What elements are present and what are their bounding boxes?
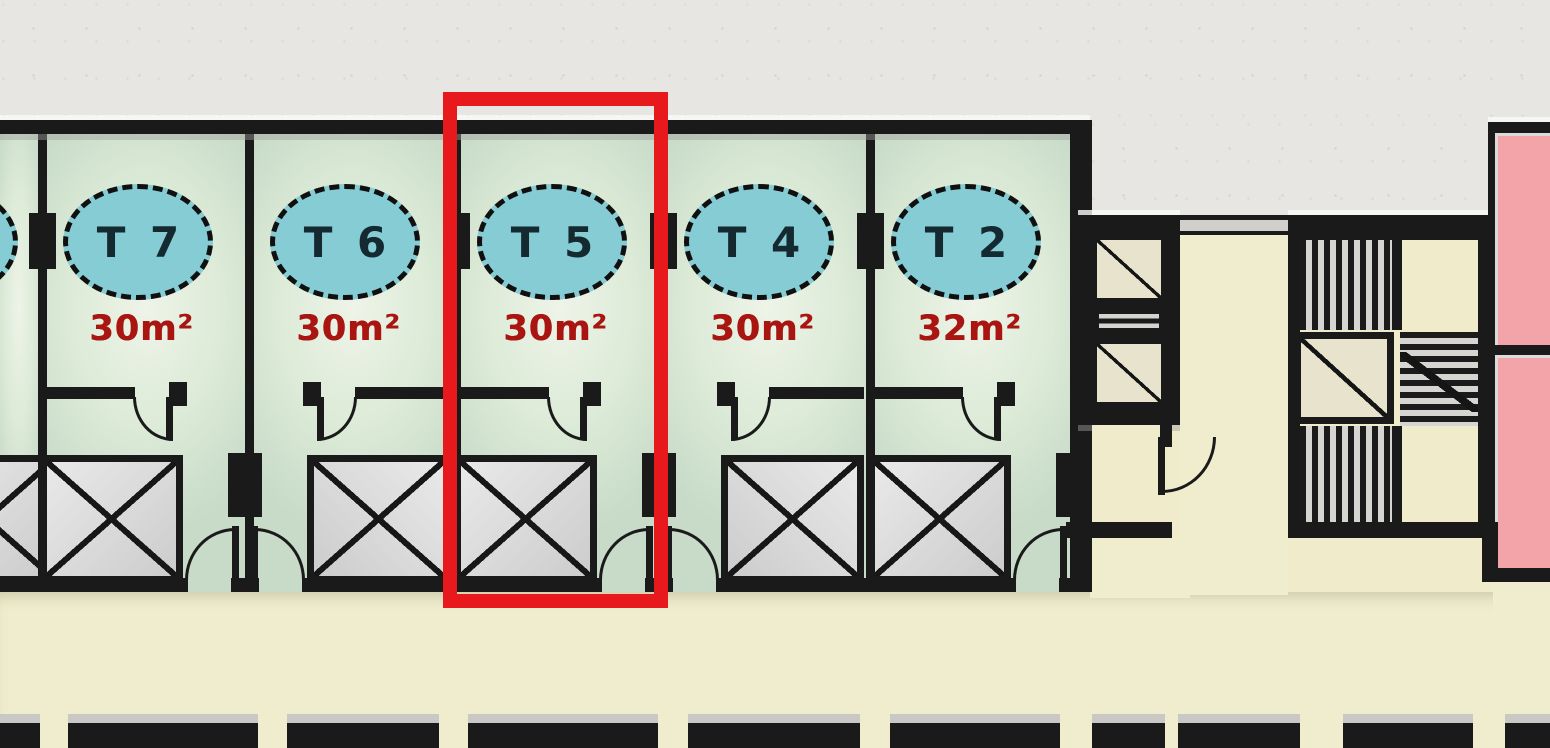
unit-T7[interactable]: T 7 30m² — [38, 120, 245, 592]
stairwell-top-wall — [1288, 215, 1493, 240]
unit-T6[interactable]: T 6 30m² — [245, 120, 452, 592]
unit-bottom-wall — [38, 578, 188, 592]
pink-room-1 — [1498, 136, 1550, 345]
entrance-door-leaf — [232, 526, 239, 582]
unit-number-badge: T 6 — [270, 184, 420, 300]
unit-area: 32m² — [866, 309, 1073, 349]
unit-number: T 2 — [920, 218, 1013, 267]
lower-unit-wall-segment — [1092, 714, 1165, 748]
entrance-door-arc — [1013, 528, 1063, 580]
interior-wall — [868, 387, 963, 399]
unit-bottom-wall — [866, 578, 1016, 592]
stair-direction-line — [1400, 352, 1478, 412]
unit-partial-left — [0, 120, 38, 592]
unit-number: T 7 — [92, 218, 185, 267]
shaft-block-upper — [857, 213, 884, 269]
interior-wall — [40, 387, 135, 399]
pink-rooms-divider-wall — [1490, 345, 1550, 358]
unit-lower-section — [866, 380, 1073, 592]
corridor-right — [1180, 235, 1288, 595]
unit-area: 30m² — [245, 309, 452, 349]
lower-unit-wall-segment — [890, 714, 1060, 748]
lower-unit-wall-segment — [688, 714, 860, 748]
lower-unit-wall-segment — [1178, 714, 1300, 748]
selection-highlight-T5 — [443, 92, 668, 608]
unit-T4[interactable]: T 4 30m² — [659, 120, 866, 592]
pink-room-2 — [1498, 358, 1550, 570]
service-room-bottom-wall — [1066, 522, 1172, 538]
shaft-box — [307, 455, 450, 583]
unit-bottom-wall — [231, 578, 245, 592]
lower-unit-wall-segment — [1343, 714, 1473, 748]
unit-area: 30m² — [659, 309, 866, 349]
exterior-area-top-right — [1488, 0, 1550, 122]
lower-unit-wall-segment — [287, 714, 439, 748]
shaft-box — [721, 455, 864, 583]
unit-number-badge: T 7 — [63, 184, 213, 300]
entrance-door-leaf — [251, 526, 258, 582]
stairwell-bottom-wall — [1288, 522, 1498, 538]
stair-flight-upper — [1300, 240, 1392, 330]
shaft-block-lower — [228, 453, 245, 517]
window-band — [1180, 215, 1290, 235]
shaft-box — [868, 455, 1011, 583]
unit-bottom-wall — [716, 578, 866, 592]
unit-number-badge: T 2 — [891, 184, 1041, 300]
stairwell-elevator — [1294, 332, 1394, 424]
stair-landing-lower — [1402, 430, 1478, 522]
corridor-main — [0, 592, 1550, 716]
shaft-box — [0, 455, 38, 583]
elevator-separator — [1094, 309, 1164, 333]
entrance-door-arc — [185, 528, 235, 580]
corridor-below-shaft — [1090, 538, 1190, 598]
shaft-block-upper — [29, 213, 56, 269]
elevator-car-1 — [1090, 233, 1168, 305]
unit-area: 30m² — [38, 309, 245, 349]
lower-unit-wall-segment — [0, 714, 40, 748]
step-wall-horizontal — [1487, 568, 1550, 582]
unit-lower-section — [38, 380, 245, 592]
lower-unit-wall-segment — [1505, 714, 1550, 748]
lower-unit-wall-segment — [468, 714, 658, 748]
service-door-leaf — [1158, 437, 1165, 495]
interior-door-arc — [133, 397, 173, 441]
shaft-block-lower — [245, 453, 262, 517]
unit-lower-section — [659, 380, 866, 592]
stair-divider-wall — [1392, 240, 1402, 330]
stair-flight-lower — [1300, 426, 1392, 522]
stair-landing-upper — [1402, 240, 1478, 332]
unit-bottom-wall — [245, 578, 259, 592]
unit-bottom-wall — [302, 578, 452, 592]
entrance-door-arc — [669, 528, 719, 580]
unit-bottom-wall — [0, 578, 38, 592]
unit-number: T 6 — [299, 218, 392, 267]
interior-door-arc — [961, 397, 1001, 441]
floor-plan: T 7 30m² T 6 30m² — [0, 0, 1550, 748]
service-room — [1092, 425, 1160, 522]
entrance-door-arc — [255, 528, 305, 580]
unit-number-badge: T 4 — [684, 184, 834, 300]
interior-door-arc — [317, 397, 357, 441]
interior-wall — [355, 387, 450, 399]
corridor-bottom-right — [1493, 582, 1550, 716]
interior-wall — [769, 387, 864, 399]
elevator-car-2 — [1090, 337, 1168, 409]
shaft-box — [40, 455, 183, 583]
exterior-area-mid-right — [1090, 120, 1488, 215]
interior-door-arc — [731, 397, 771, 441]
unit-number: T 4 — [713, 218, 806, 267]
exterior-area-top — [0, 0, 1550, 120]
unit-lower-section — [245, 380, 452, 592]
unit-T2[interactable]: T 2 32m² — [866, 120, 1073, 592]
lower-unit-wall-segment — [68, 714, 258, 748]
stair-divider-wall-2 — [1392, 426, 1402, 522]
